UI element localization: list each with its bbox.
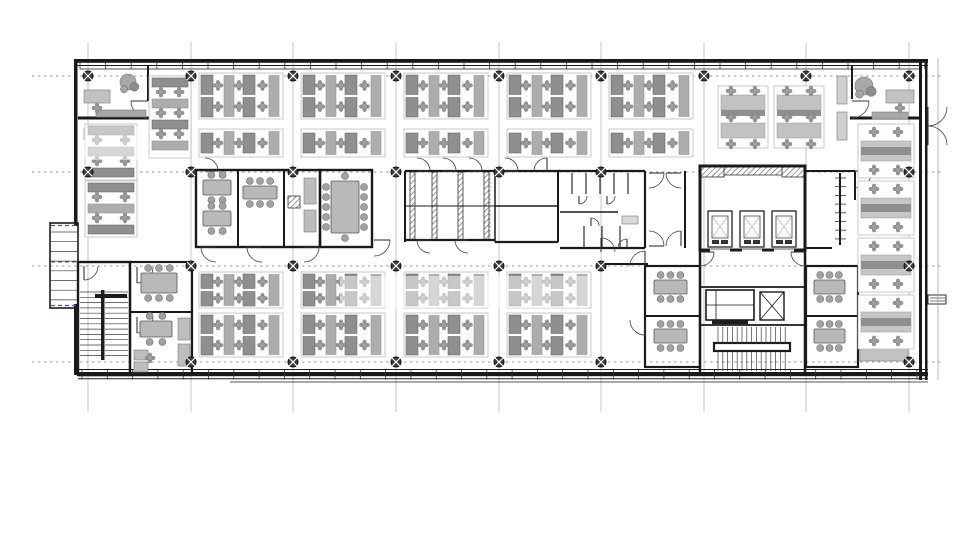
column-marker [904, 71, 914, 81]
column-marker [186, 357, 196, 367]
column-marker [596, 261, 606, 271]
column-marker [186, 71, 196, 81]
column-marker [904, 357, 914, 367]
column-marker [83, 167, 93, 177]
floor-plan [0, 0, 975, 535]
column-marker [904, 167, 914, 177]
column-marker [186, 261, 196, 271]
column-marker [288, 261, 298, 271]
column-marker [288, 357, 298, 367]
column-marker [494, 357, 504, 367]
column-marker [596, 167, 606, 177]
column-marker [288, 167, 298, 177]
plant [855, 77, 876, 98]
column-marker [391, 167, 401, 177]
column-marker [596, 71, 606, 81]
column-marker [391, 357, 401, 367]
column-marker [596, 357, 606, 367]
column-marker [494, 167, 504, 177]
column-marker [801, 71, 811, 81]
column-marker [391, 261, 401, 271]
task-chair [895, 103, 905, 113]
column-marker [699, 71, 709, 81]
column-marker [494, 71, 504, 81]
column-marker [494, 261, 504, 271]
plant [120, 74, 139, 93]
column-marker [904, 261, 914, 271]
floor-plan-svg [0, 0, 975, 535]
column-marker [288, 71, 298, 81]
column-marker [186, 167, 196, 177]
column-marker [83, 71, 93, 81]
column-marker [391, 71, 401, 81]
